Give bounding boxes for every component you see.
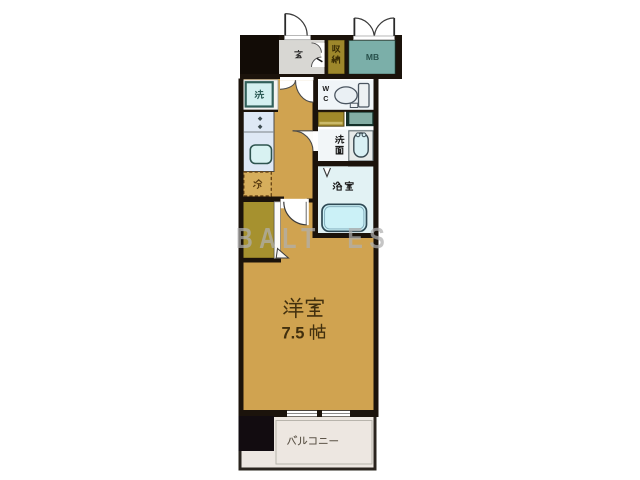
svg-text:W: W	[322, 84, 329, 93]
svg-text:C: C	[323, 94, 328, 103]
svg-text:MB: MB	[366, 52, 379, 62]
svg-text:BALT ES: BALT ES	[236, 221, 391, 254]
svg-text:7.5: 7.5	[282, 325, 305, 343]
